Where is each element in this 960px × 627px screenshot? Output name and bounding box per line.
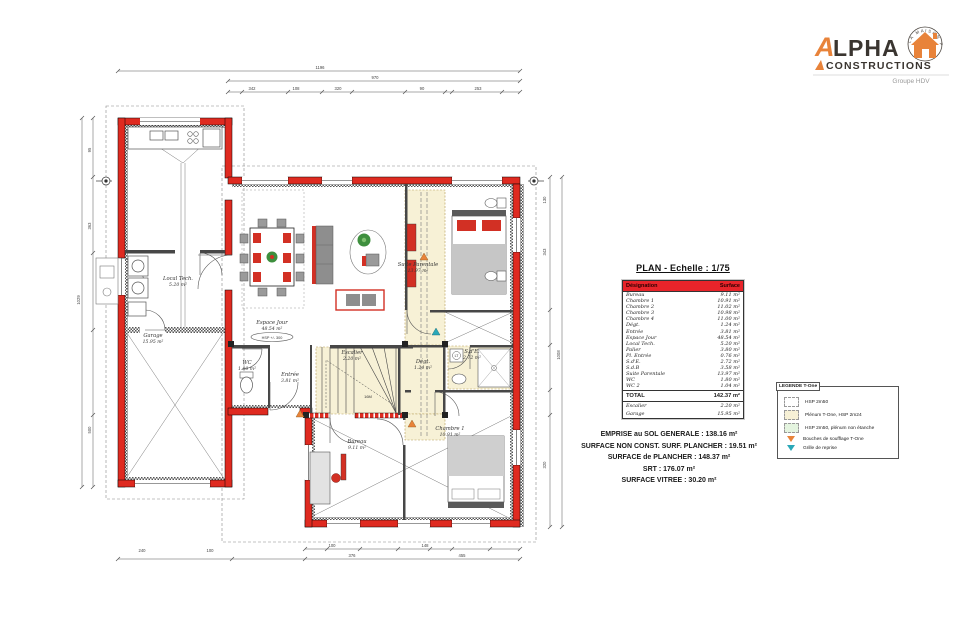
dimension-value: 100 [329, 543, 337, 548]
dimension-value: 342 [249, 86, 257, 91]
room-label: Chambre 1 [435, 426, 464, 432]
legend-label: HSP 2m50 [805, 400, 828, 405]
room-area-label: 3.81 m² [281, 378, 299, 384]
surface-value-cell: 9.11 m² [693, 292, 744, 299]
dimension-value: 130 [542, 196, 547, 204]
room-label: Local Tech. [162, 276, 193, 282]
surface-table: Désignation Surface Bureau9.11 m²Chambre… [622, 280, 744, 419]
stair-note: 16M [364, 394, 372, 399]
legend-label: Grille de reprise [803, 446, 837, 451]
blueprint-page: 1196970342108320902531029953635001008130… [0, 0, 960, 627]
col-designation: Désignation [623, 281, 693, 292]
room-area-label: 48.54 m² [261, 326, 283, 332]
summary-line: SURFACE de PLANCHER : 148.37 m² [560, 452, 778, 464]
table-row: Bureau9.11 m² [623, 292, 744, 299]
triangle-orange-icon [787, 436, 795, 442]
swatch-green-icon [784, 423, 799, 433]
plan-scale-title: PLAN - Echelle : 1/75 [622, 263, 744, 273]
room-area-label: 1.80 m² [238, 366, 256, 372]
legend-title: LEGENDE T-One [776, 382, 820, 391]
floor-plan-drawing: 1196970342108320902531029953635001008130… [0, 0, 960, 627]
dimension-value: 1008 [556, 350, 561, 360]
triangle-teal-icon [787, 445, 795, 451]
logo-brand-text: LPHA [833, 35, 900, 61]
swatch-white-icon [784, 397, 799, 407]
legend-label: Bouches de soufflage T-One [803, 437, 864, 442]
surface-table-header: Désignation Surface [623, 281, 744, 292]
logo-subtitle: Groupe HDV [892, 78, 930, 85]
room-name-cell: TOTAL [623, 390, 693, 401]
room-label: Dégt. [415, 358, 431, 365]
company-logo: LA MAISON PARFAITE A LPHA CONSTRUCTIONS … [813, 18, 949, 88]
dimension-value: 90 [420, 86, 425, 91]
dimension-value: 253 [475, 86, 483, 91]
summary-line: SURFACE VITREE : 30.20 m² [560, 475, 778, 487]
legend-label: Plénum T-One, HSP 2m24 [805, 413, 862, 418]
surface-value-cell: 142.37 m² [693, 390, 744, 401]
legend-item: Grille de reprise [782, 445, 894, 451]
room-label: Escalier [340, 350, 363, 356]
table-row: WC 21.04 m² [623, 383, 744, 390]
room-area-label: 2.20 m² [342, 356, 361, 362]
surface-value-cell: 1.04 m² [693, 383, 744, 390]
legend-item: HSP 2m50 [782, 397, 894, 407]
legend-item: Bouches de soufflage T-One [782, 436, 894, 442]
room-area-label: 10.91 m² [440, 432, 461, 438]
legend-item: HSP 2m50, plénum non étanche [782, 423, 894, 433]
swatch-cream-icon [784, 410, 799, 420]
room-name-cell: Garage [623, 410, 693, 419]
summary-line: EMPRISE au SOL GENERALE : 138.16 m² [560, 429, 778, 441]
dimension-value: 1196 [315, 65, 325, 70]
dimension-value: 500 [87, 426, 92, 434]
dimension-value: 320 [335, 86, 343, 91]
room-label: Garage [143, 333, 162, 339]
room-label: Bureau [346, 439, 366, 445]
col-surface: Surface [693, 281, 744, 292]
dimension-value: 240 [139, 548, 147, 553]
table-row: TOTAL142.37 m² [623, 390, 744, 401]
dimension-value: 320 [542, 461, 547, 469]
table-row: Garage15.95 m² [623, 410, 744, 419]
interior-brick-walls [305, 413, 405, 418]
room-label: Entrée [280, 371, 299, 378]
hsp-badge-text: HSP +/- 300 [262, 336, 283, 340]
room-area-label: 9.11 m² [348, 445, 366, 451]
dimension-value: 148 [422, 543, 430, 548]
room-name-cell: Escalier [623, 401, 693, 410]
surface-value-cell: 2.20 m² [693, 401, 744, 410]
dimension-value: 376 [349, 553, 357, 558]
exterior-porch [96, 258, 118, 304]
summary-line: SRT : 176.07 m² [560, 464, 778, 476]
room-name-cell: Bureau [623, 292, 693, 299]
dimension-value: 1029 [76, 295, 81, 305]
room-label: S.d'E. [464, 349, 480, 355]
dimension-value: 455 [459, 553, 467, 558]
room-label: Suite Parentale [398, 262, 439, 268]
room-area-label: 1.24 m² [414, 365, 432, 371]
room-area-label: 15.95 m² [143, 339, 164, 345]
dimension-value: 343 [542, 248, 547, 256]
dimension-value: 95 [87, 147, 92, 152]
room-area-label: 2.72 m² [462, 355, 481, 361]
summary-line: SURFACE NON CONST. SURF. PLANCHER : 19.5… [560, 441, 778, 453]
room-label: Espace Jour [255, 320, 288, 326]
room-name-cell: WC 2 [623, 383, 693, 390]
dimension-value: 108 [293, 86, 301, 91]
room-area-label: 5.20 m² [169, 282, 187, 288]
logo-line2: CONSTRUCTIONS [826, 60, 932, 72]
dimension-value: 970 [372, 75, 380, 80]
table-row: Escalier2.20 m² [623, 401, 744, 410]
legend-label: HSP 2m50, plénum non étanche [805, 426, 874, 431]
t-one-legend: LEGENDE T-One HSP 2m50Plénum T-One, HSP … [777, 386, 899, 459]
surface-value-cell: 15.95 m² [693, 410, 744, 419]
surface-summary: EMPRISE au SOL GENERALE : 138.16 m²SURFA… [560, 429, 778, 487]
logo-letter-a: A [814, 32, 835, 62]
dimension-value: 363 [87, 222, 92, 230]
room-label: WC [242, 360, 251, 366]
room-area-label: 13.97 m² [408, 268, 429, 274]
dimension-value: 100 [207, 548, 215, 553]
legend-item: Plénum T-One, HSP 2m24 [782, 410, 894, 420]
